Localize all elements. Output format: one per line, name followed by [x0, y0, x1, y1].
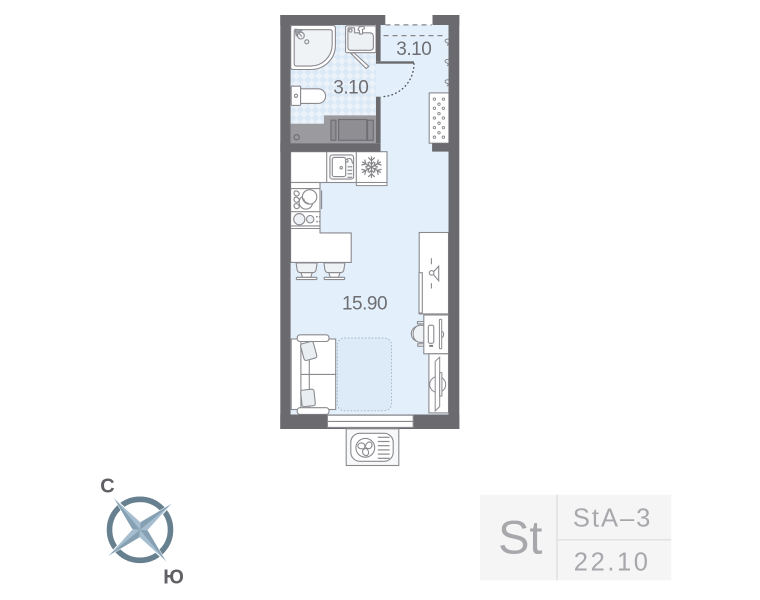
- svg-text:С: С: [100, 476, 114, 498]
- svg-text:Ю: Ю: [163, 566, 184, 588]
- svg-text:3.10: 3.10: [333, 78, 368, 99]
- svg-text:22.10: 22.10: [574, 548, 651, 576]
- svg-text:3.10: 3.10: [396, 39, 431, 60]
- svg-text:15.90: 15.90: [342, 294, 387, 315]
- svg-text:St: St: [498, 511, 542, 564]
- svg-text:StA–3: StA–3: [573, 505, 652, 533]
